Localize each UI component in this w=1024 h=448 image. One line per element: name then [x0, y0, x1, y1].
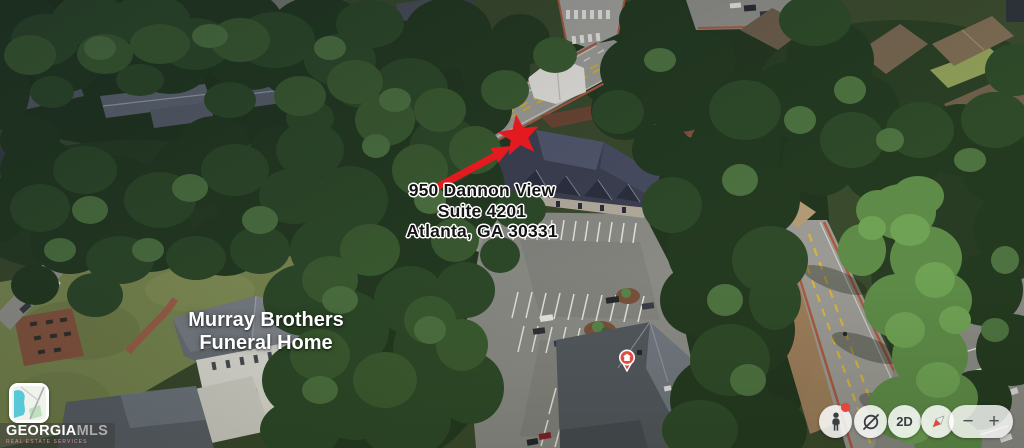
business-name-line-2: Funeral Home — [156, 332, 376, 355]
brand-tagline: REAL ESTATE SERVICES — [6, 439, 108, 445]
compass-icon — [928, 412, 948, 432]
address-label: 950 Dannon View Suite 4201 Atlanta, GA 3… — [362, 180, 602, 242]
2d-view-label: 2D — [896, 414, 913, 429]
pegman-notification-badge — [841, 403, 850, 412]
address-line-2: Suite 4201 — [362, 201, 602, 222]
address-line-1: 950 Dannon View — [362, 180, 602, 201]
brand-name: GEORGIA — [6, 424, 77, 439]
zoom-in-button[interactable]: + — [985, 412, 1003, 431]
pegman-icon — [829, 412, 843, 431]
property-star-marker — [493, 110, 549, 164]
place-pin[interactable] — [618, 349, 636, 372]
zoom-out-button[interactable]: − — [959, 412, 977, 431]
2d-view-button[interactable]: 2D — [888, 405, 921, 438]
georgiamls-logo-icon — [9, 383, 49, 423]
tilt-button[interactable] — [854, 405, 887, 438]
zoom-control: − + — [949, 405, 1013, 438]
business-name-line-1: Murray Brothers — [156, 309, 376, 332]
georgiamls-wordmark: GEORGIAMLS REAL ESTATE SERVICES — [0, 423, 115, 448]
business-name-label: Murray Brothers Funeral Home — [156, 309, 376, 355]
brand-suffix: MLS — [77, 424, 109, 439]
aerial-map-view: 950 Dannon View Suite 4201 Atlanta, GA 3… — [0, 0, 1024, 448]
tilt-orbit-icon — [861, 412, 881, 432]
address-line-3: Atlanta, GA 30331 — [362, 221, 602, 242]
map-thumbnail-icon — [9, 383, 49, 423]
